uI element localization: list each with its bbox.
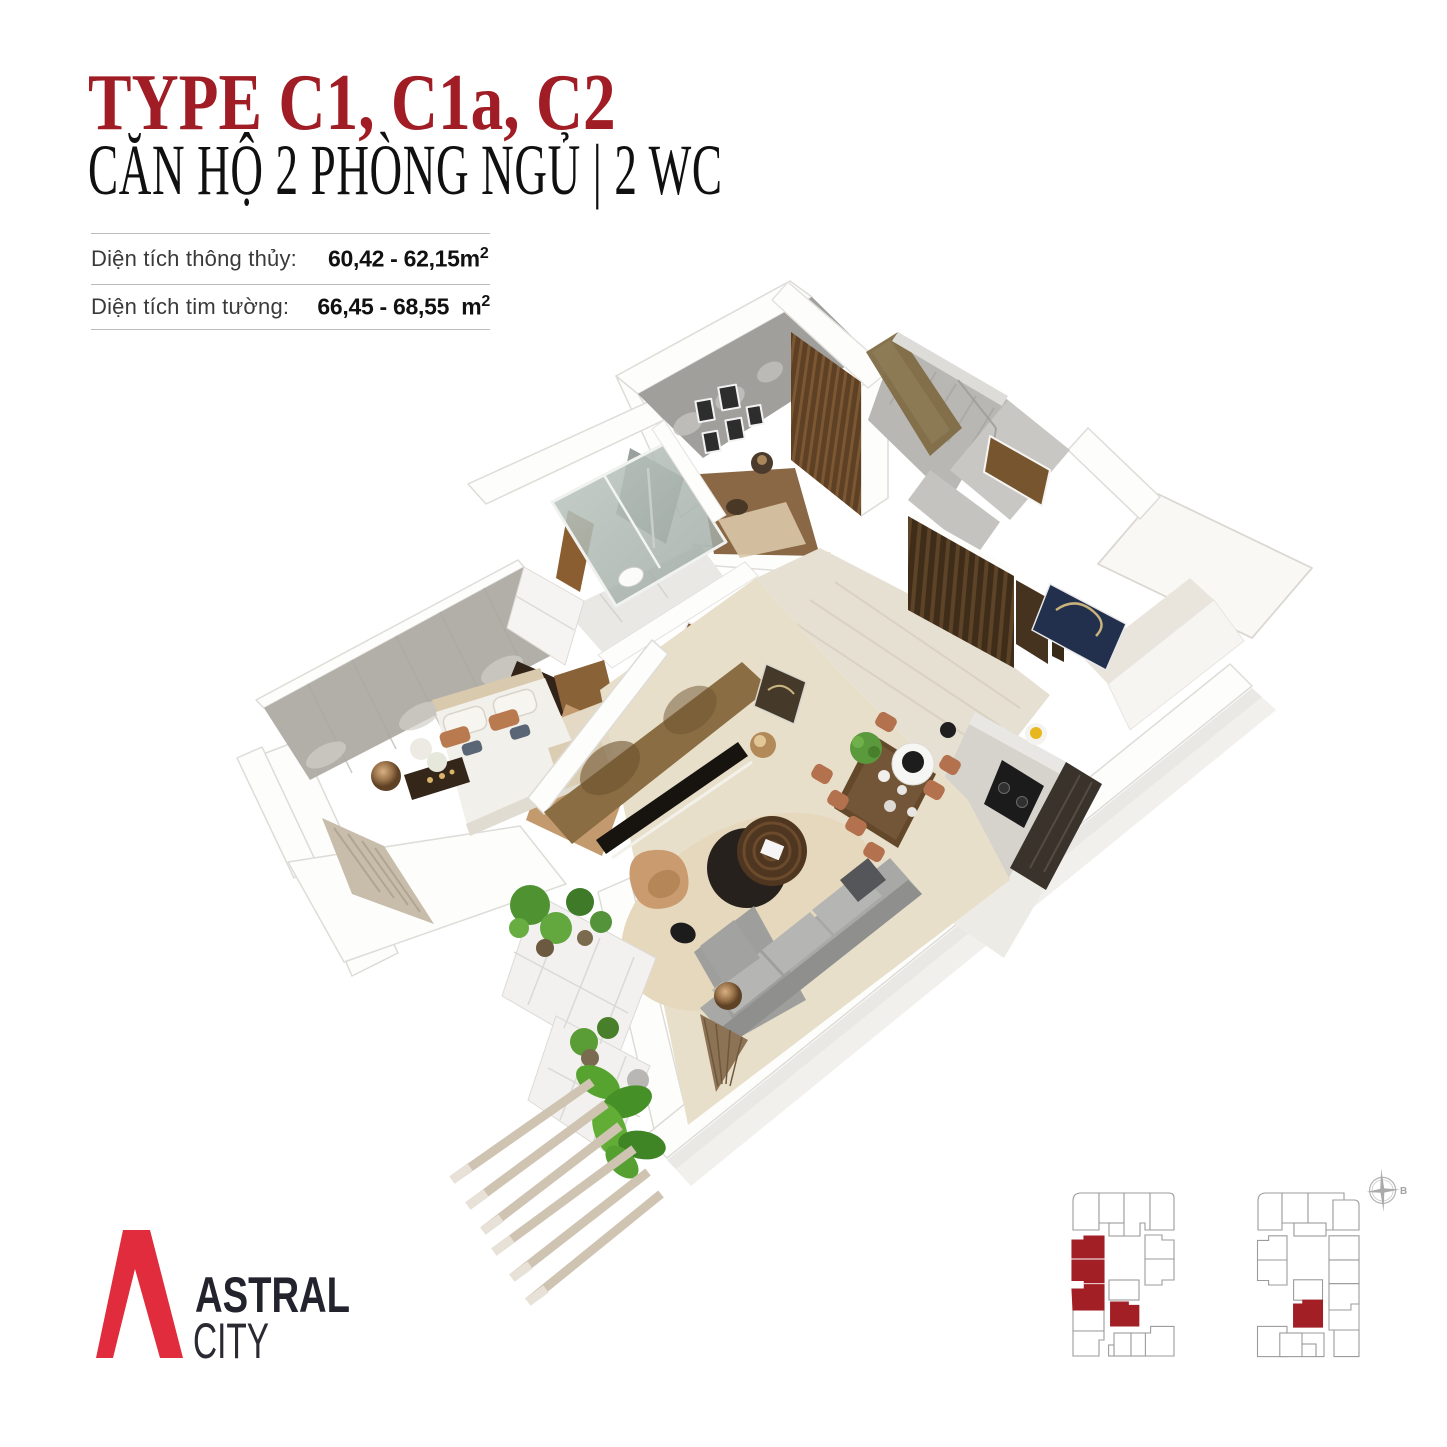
svg-text:B: B <box>1400 1186 1407 1197</box>
svg-text:CITY: CITY <box>193 1313 269 1369</box>
